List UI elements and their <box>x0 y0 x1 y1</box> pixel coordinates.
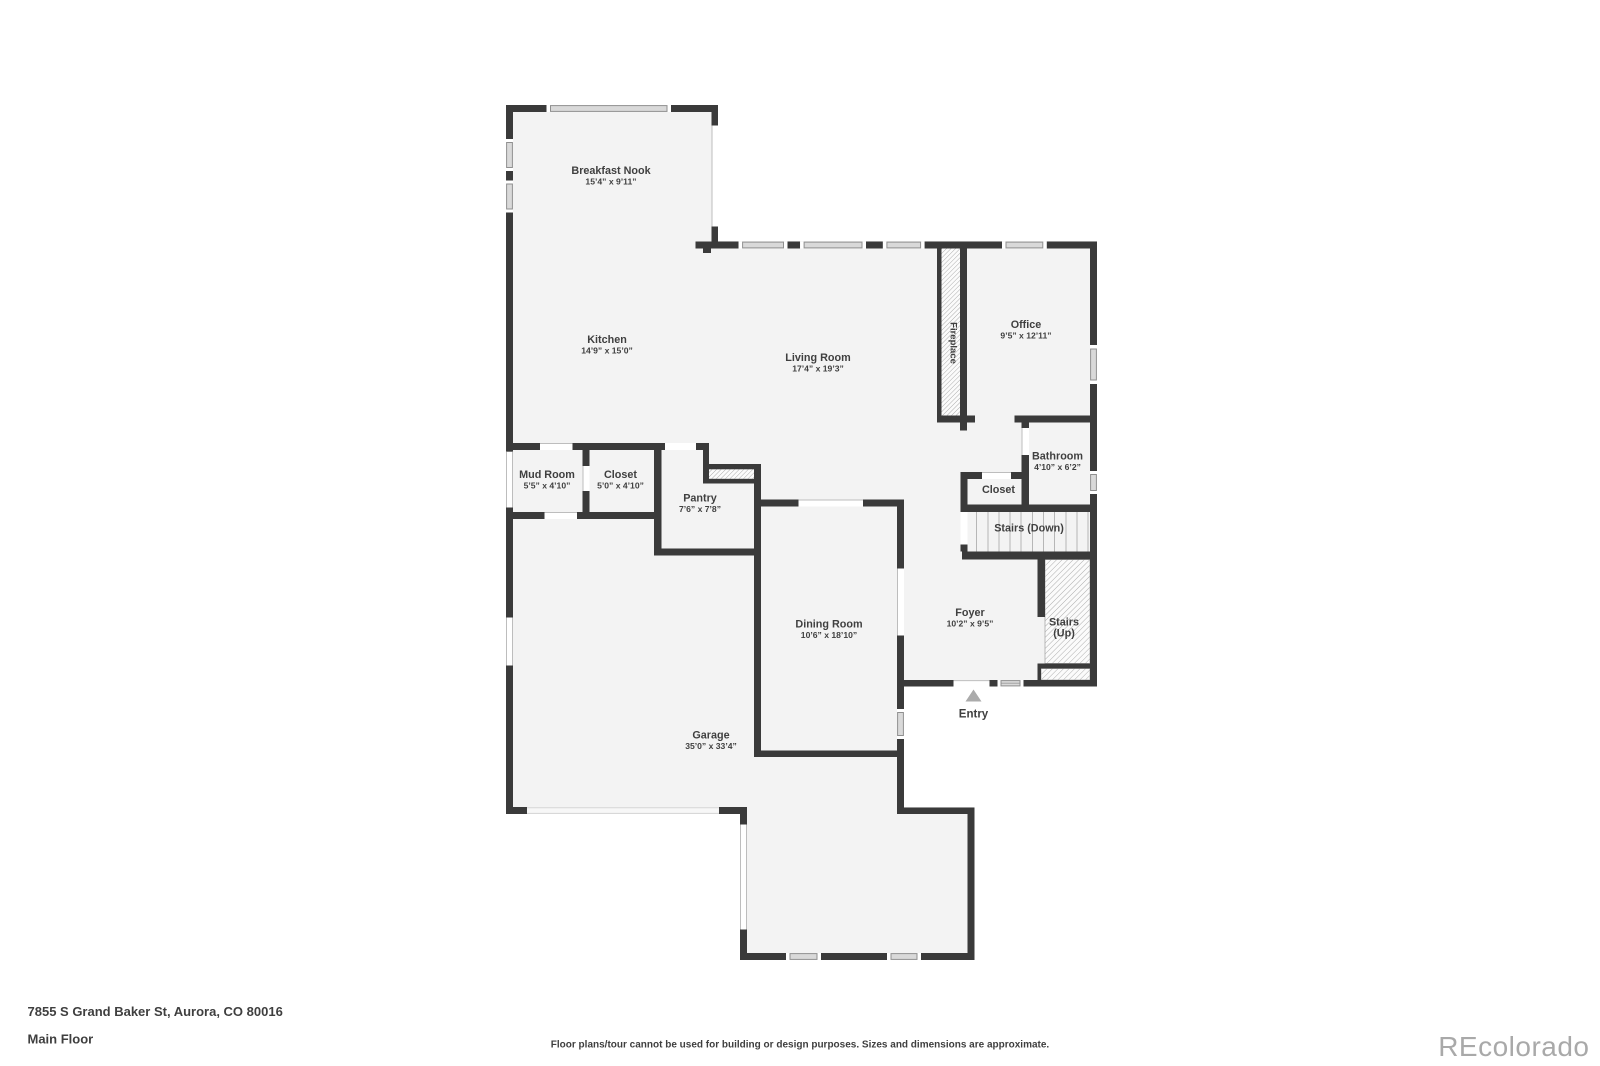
svg-text:35’0” x 33’4”: 35’0” x 33’4” <box>685 741 737 751</box>
svg-text:5’0” x 4’10”: 5’0” x 4’10” <box>597 481 644 491</box>
svg-text:Mud Room: Mud Room <box>519 469 575 481</box>
svg-text:Entry: Entry <box>959 709 989 721</box>
svg-text:Office: Office <box>1011 319 1042 331</box>
svg-text:Living Room: Living Room <box>785 352 850 364</box>
svg-text:Dining Room: Dining Room <box>795 619 862 631</box>
svg-text:Bathroom: Bathroom <box>1032 451 1083 463</box>
svg-text:Pantry: Pantry <box>683 493 717 505</box>
svg-text:Stairs (Down): Stairs (Down) <box>994 523 1064 535</box>
svg-text:Foyer: Foyer <box>955 607 985 619</box>
svg-text:5’5” x 4’10”: 5’5” x 4’10” <box>524 481 571 491</box>
svg-text:Closet: Closet <box>604 469 637 481</box>
svg-text:REcolorado: REcolorado <box>1438 1031 1589 1062</box>
svg-text:Kitchen: Kitchen <box>587 334 627 346</box>
svg-text:10’6” x 18’10”: 10’6” x 18’10” <box>801 630 857 640</box>
svg-text:(Up): (Up) <box>1053 627 1075 639</box>
svg-text:14’9” x 15’0”: 14’9” x 15’0” <box>581 346 633 356</box>
svg-text:Breakfast Nook: Breakfast Nook <box>571 165 651 177</box>
svg-text:7’6” x 7’8”: 7’6” x 7’8” <box>679 504 721 514</box>
svg-text:9’5” x 12’11”: 9’5” x 12’11” <box>1000 331 1051 341</box>
svg-text:Closet: Closet <box>982 484 1015 496</box>
svg-text:Fireplace: Fireplace <box>948 322 959 364</box>
svg-text:15’4” x 9’11”: 15’4” x 9’11” <box>585 177 636 187</box>
svg-text:Floor plans/tour cannot be use: Floor plans/tour cannot be used for buil… <box>551 1040 1050 1051</box>
svg-text:Garage: Garage <box>692 730 729 742</box>
svg-text:10’2” x 9’5”: 10’2” x 9’5” <box>947 619 994 629</box>
svg-text:7855 S Grand Baker St, Aurora,: 7855 S Grand Baker St, Aurora, CO 80016 <box>28 1004 283 1019</box>
svg-text:Main Floor: Main Floor <box>28 1032 94 1047</box>
svg-text:17’4” x 19’3”: 17’4” x 19’3” <box>792 364 844 374</box>
svg-text:4’10” x 6’2”: 4’10” x 6’2” <box>1034 462 1081 472</box>
